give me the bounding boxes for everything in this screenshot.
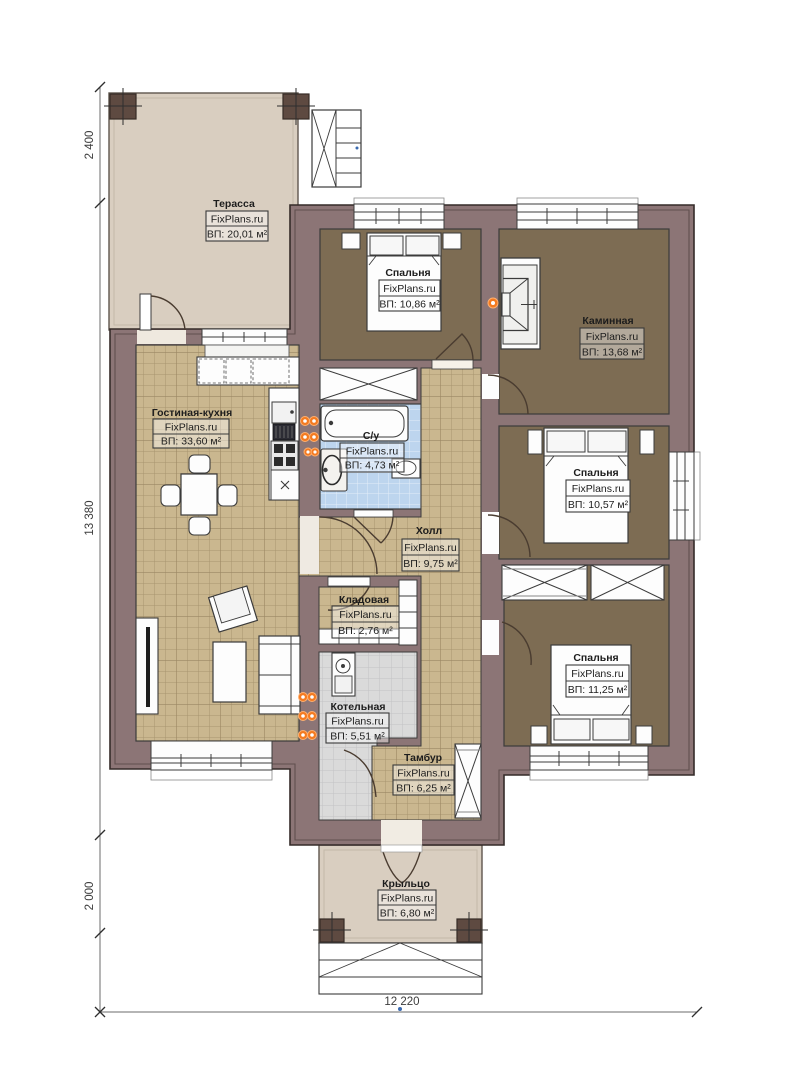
svg-text:ВП: 33,60 м²: ВП: 33,60 м² [161, 436, 222, 448]
svg-text:Терасса: Терасса [213, 198, 255, 210]
svg-text:FixPlans.ru: FixPlans.ru [331, 716, 384, 728]
svg-text:С/у: С/у [363, 430, 380, 442]
svg-text:Холл: Холл [416, 525, 442, 537]
svg-text:ВП: 11,25 м²: ВП: 11,25 м² [568, 684, 628, 696]
svg-text:ВП: 6,25 м²: ВП: 6,25 м² [396, 783, 451, 795]
svg-text:Спальня: Спальня [573, 467, 618, 479]
svg-text:Каминная: Каминная [582, 315, 633, 327]
svg-text:FixPlans.ru: FixPlans.ru [397, 768, 450, 780]
svg-text:FixPlans.ru: FixPlans.ru [571, 668, 624, 680]
svg-text:12 220: 12 220 [384, 996, 419, 1008]
svg-text:ВП: 10,86 м²: ВП: 10,86 м² [379, 299, 440, 311]
svg-text:Гостиная-кухня: Гостиная-кухня [152, 407, 232, 419]
svg-text:2 400: 2 400 [84, 131, 96, 160]
svg-text:FixPlans.ru: FixPlans.ru [211, 214, 264, 226]
svg-text:ВП: 9,75 м²: ВП: 9,75 м² [403, 558, 458, 570]
svg-text:ВП: 5,51 м²: ВП: 5,51 м² [330, 731, 385, 743]
svg-text:ВП: 13,68 м²: ВП: 13,68 м² [582, 347, 643, 359]
svg-text:FixPlans.ru: FixPlans.ru [586, 331, 639, 343]
svg-text:ВП: 6,80 м²: ВП: 6,80 м² [380, 908, 435, 920]
svg-text:Тамбур: Тамбур [404, 752, 442, 764]
svg-text:FixPlans.ru: FixPlans.ru [572, 483, 625, 495]
svg-text:FixPlans.ru: FixPlans.ru [339, 609, 392, 621]
svg-text:ВП: 2,76 м²: ВП: 2,76 м² [338, 625, 393, 637]
svg-text:FixPlans.ru: FixPlans.ru [165, 422, 218, 434]
svg-text:Спальня: Спальня [385, 267, 430, 279]
svg-text:13 380: 13 380 [84, 500, 96, 535]
svg-text:FixPlans.ru: FixPlans.ru [346, 446, 399, 458]
svg-text:FixPlans.ru: FixPlans.ru [381, 893, 434, 905]
svg-text:Спальня: Спальня [573, 652, 618, 664]
svg-text:ВП: 4,73 м²: ВП: 4,73 м² [345, 460, 400, 472]
svg-text:Котельная: Котельная [331, 701, 386, 713]
svg-text:FixPlans.ru: FixPlans.ru [404, 542, 457, 554]
svg-text:Крыльцо: Крыльцо [382, 878, 430, 890]
svg-text:2 000: 2 000 [84, 882, 96, 911]
svg-text:Кладовая: Кладовая [339, 594, 389, 606]
svg-text:ВП: 10,57 м²: ВП: 10,57 м² [568, 499, 629, 511]
svg-text:FixPlans.ru: FixPlans.ru [383, 283, 436, 295]
svg-text:ВП: 20,01 м²: ВП: 20,01 м² [207, 229, 268, 241]
